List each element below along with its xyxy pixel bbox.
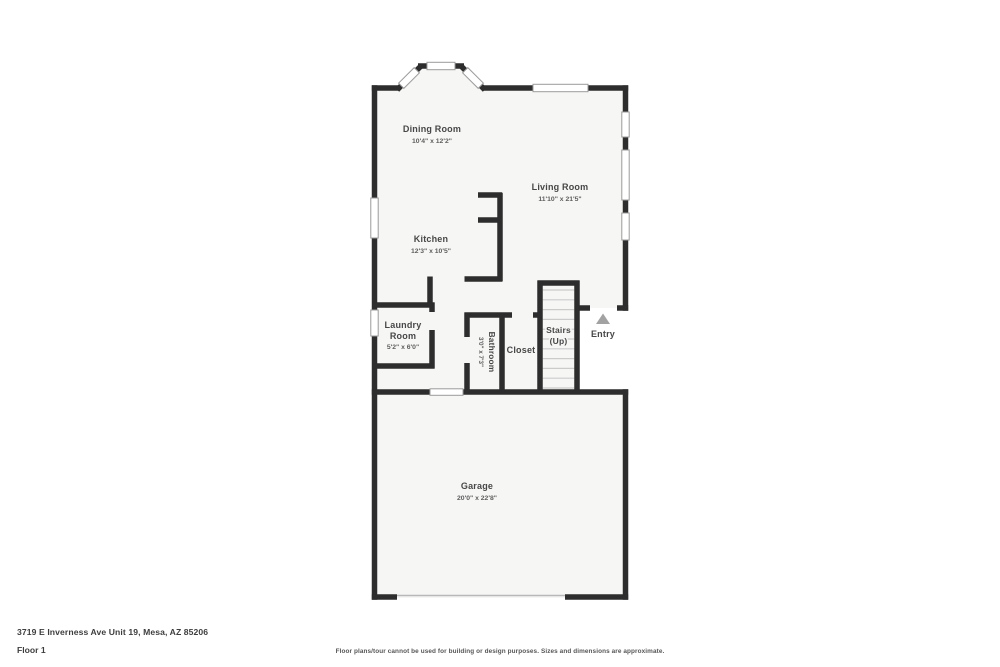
room-label-kitchen: Kitchen [414,234,448,244]
room-label-bathroom: Bathroom [487,332,497,373]
disclaimer-text: Floor plans/tour cannot be used for buil… [0,648,1000,655]
window-right-1 [622,112,629,137]
window-bay-top [427,62,455,69]
room-dims-bathroom: 3'0" x 7'3" [477,337,484,367]
room-label-stairs-2: (Up) [550,336,568,346]
room-label-dining: Dining Room [403,124,461,134]
garage-interior-door [430,389,463,396]
room-label-closet: Closet [507,345,536,355]
room-label-laundry-2: Room [390,331,416,341]
room-label-garage: Garage [461,481,493,491]
floor-garage [372,392,628,598]
room-dims-kitchen: 12'3" x 10'5" [411,248,451,255]
room-dims-garage: 20'0" x 22'8" [457,495,497,502]
room-dims-laundry: 5'2" x 6'0" [387,344,419,351]
room-dims-dining: 10'4" x 12'2" [412,138,452,145]
entry-arrow-icon [596,314,610,325]
property-address: 3719 E Inverness Ave Unit 19, Mesa, AZ 8… [17,627,208,637]
floor-plan-page: Dining Room 10'4" x 12'2" Living Room 11… [0,0,1000,667]
room-label-laundry-1: Laundry [385,320,422,330]
window-right-3 [622,213,629,240]
room-dims-living: 11'10" x 21'5" [538,196,581,203]
floor-plan-svg: Dining Room 10'4" x 12'2" Living Room 11… [0,0,1000,667]
window-top-living [533,84,588,91]
window-left-laundry [371,310,378,336]
window-right-2 [622,150,629,200]
room-label-stairs-1: Stairs [546,325,571,335]
entry-label: Entry [591,329,615,339]
room-label-living: Living Room [532,182,589,192]
window-left-kitchen [371,198,378,238]
